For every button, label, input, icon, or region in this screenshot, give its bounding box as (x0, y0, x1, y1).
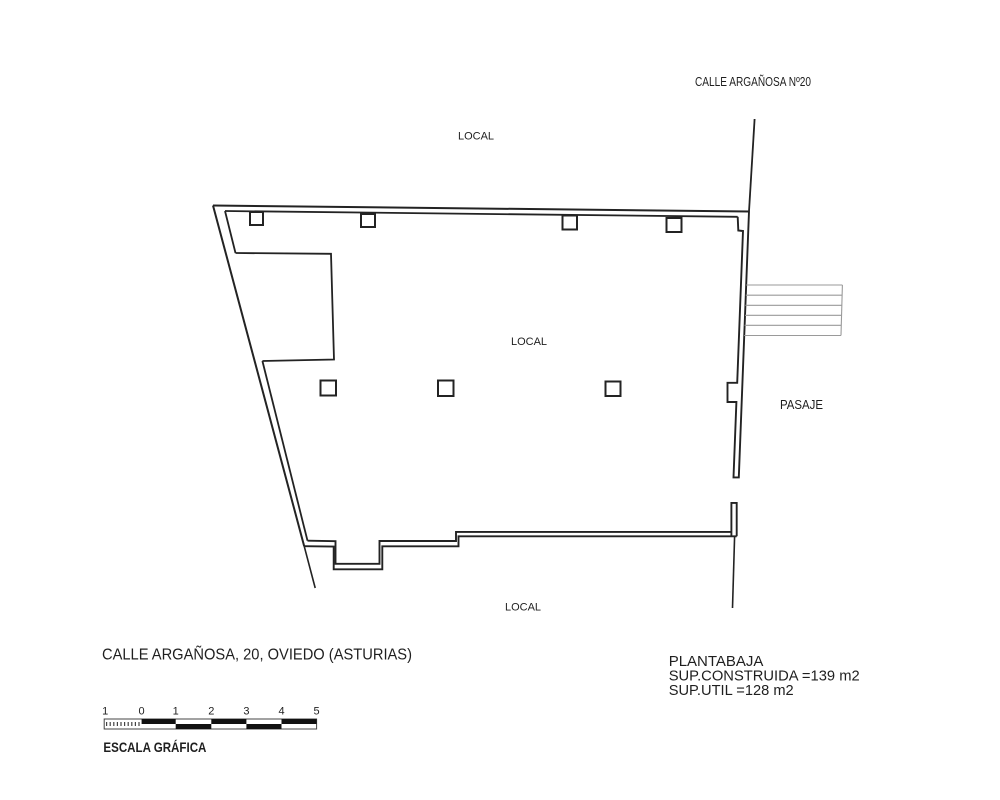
svg-text:LOCAL: LOCAL (505, 602, 541, 614)
svg-text:CALLE ARGAÑOSA Nº20: CALLE ARGAÑOSA Nº20 (695, 75, 811, 89)
svg-text:CALLE ARGAÑOSA, 20, OVIEDO (AS: CALLE ARGAÑOSA, 20, OVIEDO (ASTURIAS) (102, 647, 412, 664)
svg-text:LOCAL: LOCAL (458, 131, 494, 143)
svg-text:2: 2 (208, 706, 214, 718)
svg-text:PASAJE: PASAJE (780, 397, 823, 412)
svg-text:5: 5 (314, 706, 320, 718)
svg-text:ESCALA GRÁFICA: ESCALA GRÁFICA (103, 739, 206, 755)
svg-text:0: 0 (139, 706, 145, 718)
svg-text:1: 1 (173, 706, 179, 718)
svg-text:1: 1 (102, 706, 108, 718)
svg-text:LOCAL: LOCAL (511, 336, 547, 348)
svg-text:4: 4 (278, 706, 284, 718)
svg-text:3: 3 (243, 706, 249, 718)
svg-text:SUP.UTIL =128 m2: SUP.UTIL =128 m2 (669, 682, 794, 699)
